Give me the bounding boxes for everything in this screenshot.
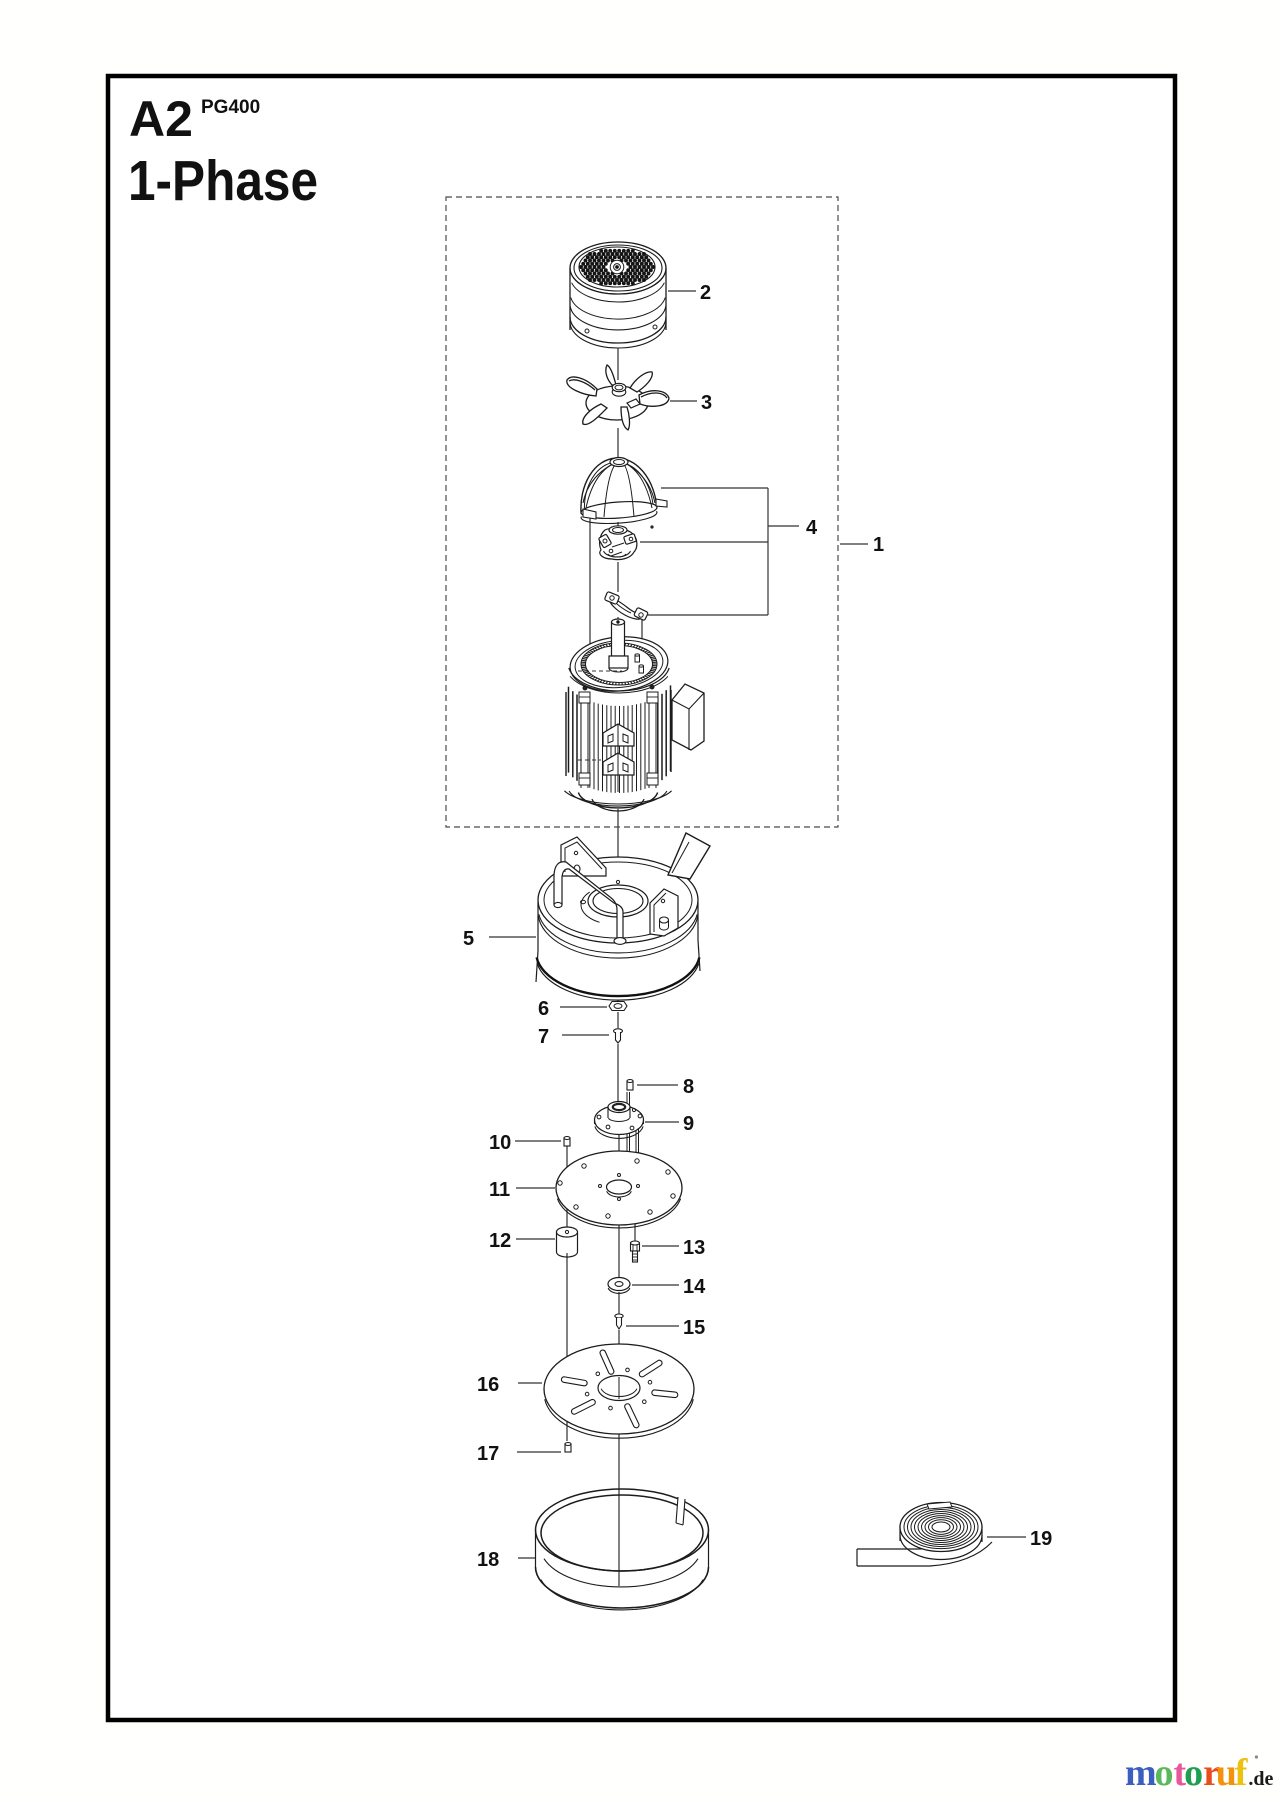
svg-text:u: u xyxy=(1216,1752,1237,1794)
svg-text:16: 16 xyxy=(477,1374,499,1396)
svg-text:f: f xyxy=(1235,1752,1249,1794)
svg-text:18: 18 xyxy=(477,1549,499,1571)
svg-text:12: 12 xyxy=(489,1230,511,1252)
svg-text:PG400: PG400 xyxy=(201,97,260,118)
svg-text:19: 19 xyxy=(1030,1528,1052,1550)
svg-text:m: m xyxy=(1125,1752,1157,1794)
svg-text:17: 17 xyxy=(477,1443,499,1465)
svg-text:6: 6 xyxy=(538,998,549,1020)
svg-text:10: 10 xyxy=(489,1132,511,1154)
svg-text:3: 3 xyxy=(701,392,712,414)
svg-text:7: 7 xyxy=(538,1026,549,1048)
svg-text:8: 8 xyxy=(683,1076,694,1098)
svg-text:1: 1 xyxy=(873,534,884,556)
svg-text:4: 4 xyxy=(806,517,818,539)
svg-text:5: 5 xyxy=(463,928,474,950)
svg-text:o: o xyxy=(1184,1752,1203,1794)
svg-text:13: 13 xyxy=(683,1237,705,1259)
svg-text:15: 15 xyxy=(683,1317,705,1339)
svg-text:A2: A2 xyxy=(129,91,193,147)
svg-text:11: 11 xyxy=(489,1179,510,1201)
svg-text:o: o xyxy=(1155,1752,1174,1794)
svg-text:2: 2 xyxy=(700,282,711,304)
svg-text:.de: .de xyxy=(1248,1768,1273,1790)
svg-text:9: 9 xyxy=(683,1113,694,1135)
svg-text:1-Phase: 1-Phase xyxy=(128,149,318,213)
svg-text:14: 14 xyxy=(683,1276,706,1298)
